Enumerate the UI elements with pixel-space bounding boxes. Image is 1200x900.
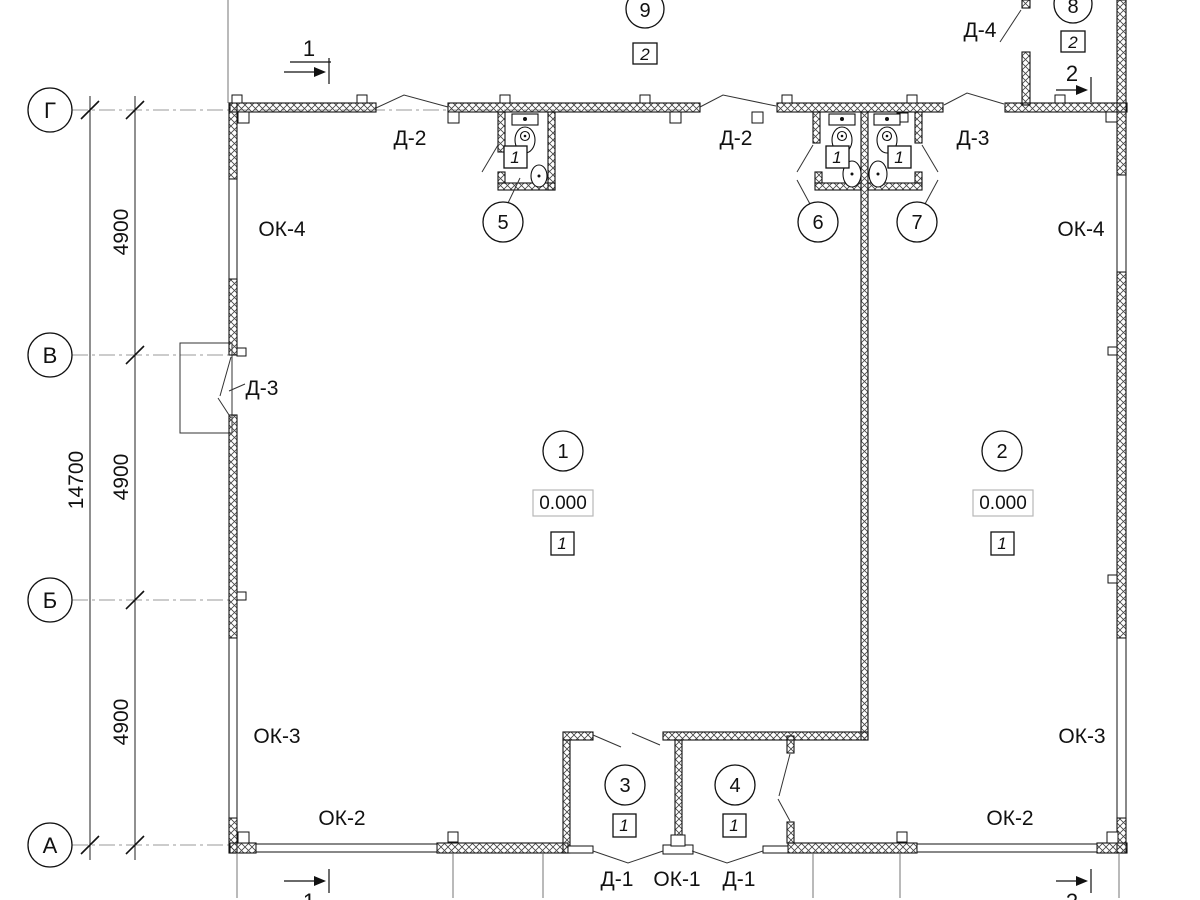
room-number-6: 6	[812, 212, 823, 234]
window-ok3-right	[1117, 638, 1126, 818]
door-tag-d2-left: Д-2	[394, 127, 427, 150]
dim-bay-3: 4900	[110, 699, 133, 746]
room-number-4: 4	[729, 775, 740, 797]
axis-label-v: В	[43, 343, 58, 368]
window-tag-ok2-right: ОК-2	[986, 807, 1033, 830]
elevation-room-2: 0.000	[979, 493, 1027, 514]
door-tag-d2-right: Д-2	[720, 127, 753, 150]
window-ok2-left	[256, 844, 437, 852]
room-number-7: 7	[911, 212, 922, 234]
floor-plan-drawing: Г В Б А 4900 4900 4900 14700 1 2 3 4 5 6…	[0, 0, 1200, 900]
window-ok2-right	[917, 844, 1097, 852]
section-number: 1	[303, 889, 315, 900]
door-tag-d1-right: Д-1	[723, 868, 756, 891]
leader-lines	[229, 10, 1021, 391]
room-number-1: 1	[557, 441, 568, 463]
elevation-marks: 0.000 0.000	[533, 490, 1033, 516]
finish-tag-room-2: 1	[997, 534, 1006, 553]
dim-total: 14700	[65, 451, 88, 509]
door-sill	[568, 846, 593, 853]
room-number-9: 9	[639, 0, 650, 22]
elevation-room-1: 0.000	[539, 493, 587, 514]
window-ok3-left	[229, 638, 237, 818]
axis-label-g: Г	[44, 98, 56, 123]
section-marks: 1 2 1 2	[284, 36, 1091, 900]
window-tag-ok1: ОК-1	[653, 868, 700, 891]
finish-tag-room-7: 1	[894, 148, 903, 167]
finish-tag-room-8: 2	[1067, 33, 1078, 52]
floor-plan-canvas: Г В Б А 4900 4900 4900 14700 1 2 3 4 5 6…	[0, 0, 1200, 900]
walls	[229, 0, 1127, 853]
window-tag-ok2-left: ОК-2	[318, 807, 365, 830]
room-number-8: 8	[1067, 0, 1078, 18]
room-number-3: 3	[619, 775, 630, 797]
window-ok4-left	[229, 179, 237, 279]
finish-tag-room-1: 1	[557, 534, 566, 553]
axis-label-b: Б	[43, 588, 57, 613]
dim-bay-2: 4900	[110, 454, 133, 501]
finish-tag-room-9: 2	[639, 45, 650, 64]
dimension-texts: 4900 4900 4900 14700	[65, 209, 133, 746]
window-tag-ok3-left: ОК-3	[253, 725, 300, 748]
finish-tag-room-6: 1	[832, 148, 841, 167]
finish-tag-room-5: 1	[510, 148, 519, 167]
window-ok1-unit	[671, 835, 685, 846]
section-mark-1-top: 1	[284, 36, 331, 84]
door-sill	[763, 846, 788, 853]
section-number: 2	[1066, 889, 1078, 900]
axis-label-a: А	[43, 833, 58, 858]
door-tag-d4: Д-4	[964, 19, 997, 42]
section-mark-2-bottom: 2	[1056, 869, 1091, 900]
room-number-5: 5	[497, 212, 508, 234]
door-tag-d3-top: Д-3	[957, 127, 990, 150]
window-tag-ok4-left: ОК-4	[258, 218, 306, 241]
room-numbers: 1 2 3 4 5 6 7 8 9	[483, 0, 1092, 805]
finish-tag-room-3: 1	[619, 816, 628, 835]
finish-tag-room-4: 1	[729, 816, 738, 835]
window-tag-ok4-right: ОК-4	[1057, 218, 1105, 241]
axis-grid-lines	[72, 0, 688, 845]
dim-bay-1: 4900	[110, 209, 133, 256]
window-ok4-right	[1117, 175, 1126, 272]
wall-piers	[232, 95, 1118, 843]
section-number: 1	[303, 36, 315, 61]
room-number-2: 2	[996, 441, 1007, 463]
section-number: 2	[1066, 61, 1078, 86]
window-tag-ok3-right: ОК-3	[1058, 725, 1105, 748]
door-tag-d1-left: Д-1	[601, 868, 634, 891]
door-tag-d3-left: Д-3	[246, 377, 279, 400]
section-mark-1-bottom: 1	[284, 869, 329, 900]
entry-porch-outline	[180, 343, 232, 433]
opening-break-marks	[218, 93, 1004, 863]
